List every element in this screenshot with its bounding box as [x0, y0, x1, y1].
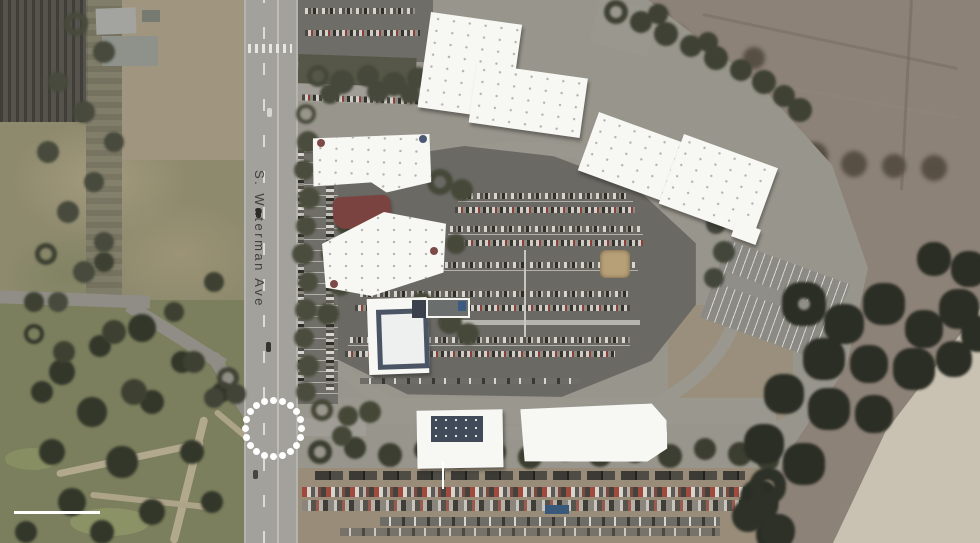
trees-avenue-row — [300, 108, 312, 120]
trees-left-field — [40, 248, 52, 260]
intersection-highlight-circle — [270, 425, 277, 432]
terrain-dirt-track-3 — [900, 0, 913, 190]
playground-square — [600, 250, 630, 278]
golf-green-2 — [5, 448, 60, 470]
waterman-crosswalk — [248, 44, 292, 53]
trees-bottom-right-tail — [762, 480, 774, 492]
house-roof-1 — [96, 7, 137, 34]
campus-nw-parking-cars-2 — [305, 30, 420, 36]
yard-junk-row-2 — [302, 500, 758, 511]
parking-row-4 — [448, 240, 643, 246]
yard-junk-row-3 — [380, 517, 720, 526]
parking-row-3 — [450, 226, 640, 232]
building-center-upper-dome-left — [317, 139, 325, 147]
trees-bottom-right-mass — [798, 298, 810, 310]
road-vehicle-2 — [267, 108, 272, 117]
building-utility-bar-chip — [458, 301, 466, 311]
trees-campus-mid — [434, 176, 446, 188]
parking-row-2 — [455, 207, 635, 213]
terrain-dirt-track-1 — [703, 13, 958, 70]
building-center-lower-dome — [330, 280, 338, 288]
aerial-map: S. Waterman Ave — [0, 0, 980, 543]
yard-junk-row-4 — [340, 528, 720, 536]
house-roof-2 — [102, 36, 158, 66]
campus-nw-parking-cars-1 — [305, 8, 415, 14]
scale-bar — [14, 511, 100, 514]
parking-row-6 — [360, 291, 630, 297]
building-leader-line — [442, 462, 444, 489]
road-vehicle-3 — [266, 342, 271, 352]
yard-truck-row — [315, 471, 745, 480]
parking-walkway — [524, 250, 526, 340]
parking-row-10 — [360, 378, 580, 384]
stall-line-1 — [458, 201, 633, 202]
stall-line-2 — [448, 234, 643, 235]
trees-northwest-hedge — [70, 18, 82, 30]
building-center-upper-dome-right — [419, 135, 427, 143]
parking-row-1 — [460, 193, 630, 199]
parking-cross-aisle — [440, 320, 640, 325]
waterman-lane-solid — [277, 0, 279, 543]
house-shed — [142, 10, 160, 22]
yard-blue-container — [545, 505, 569, 514]
building-small-rooftop-unit — [412, 300, 426, 318]
trees-golf-course — [28, 328, 40, 340]
building-center-lower-dome-2 — [430, 247, 438, 255]
yard-junk-row-1 — [302, 487, 758, 497]
trees-near-intersection-west — [222, 372, 234, 384]
road-vehicle-4 — [253, 470, 258, 479]
campus-entry-east — [296, 418, 366, 436]
building-south-2 — [520, 403, 667, 465]
trees-near-intersection-east — [316, 404, 328, 416]
trees-campus-north — [312, 70, 324, 82]
trees-south-road-row — [314, 446, 326, 458]
building-south-1-slate-roof — [431, 416, 483, 442]
trees-topright-band — [610, 6, 622, 18]
road-label: S. Waterman Ave — [252, 170, 267, 308]
